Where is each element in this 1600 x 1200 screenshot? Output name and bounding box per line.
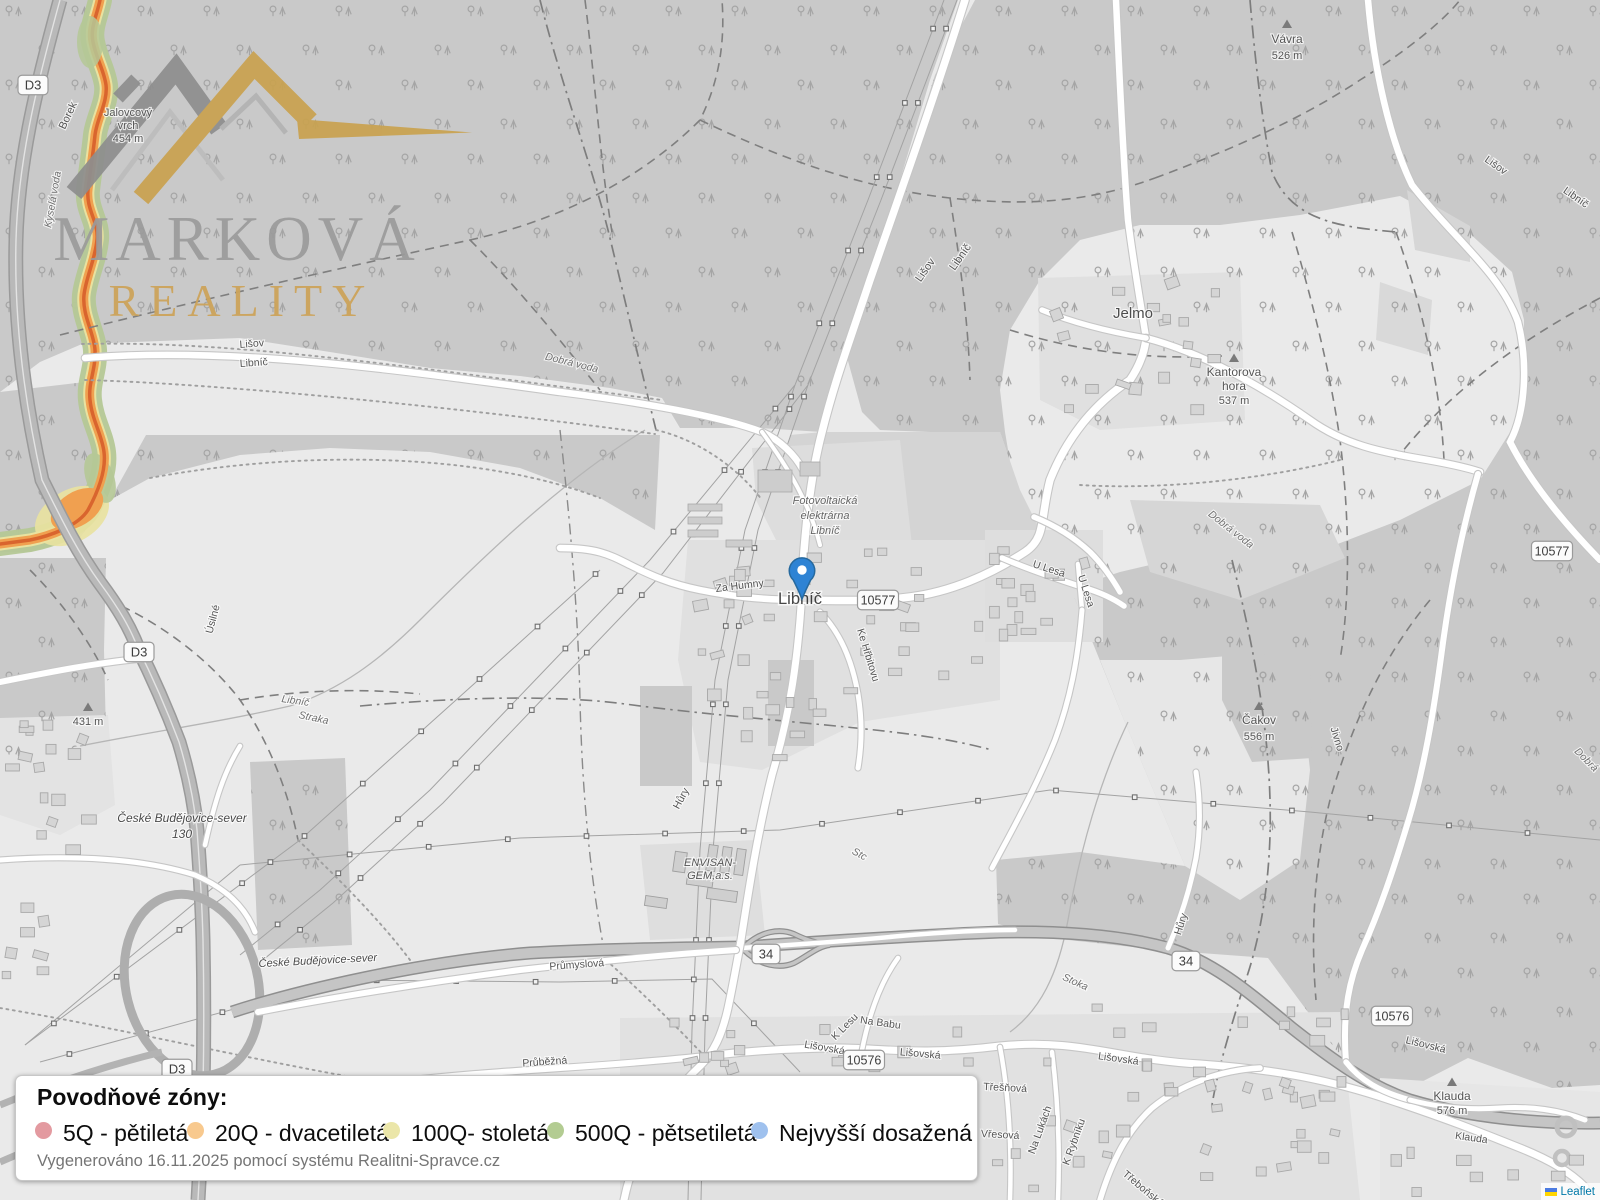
svg-text:D3: D3	[25, 77, 42, 92]
svg-text:34: 34	[759, 946, 773, 961]
svg-text:Fotovoltaická: Fotovoltaická	[793, 495, 858, 507]
svg-text:REALITY: REALITY	[109, 275, 376, 326]
svg-text:Jalovcový: Jalovcový	[104, 107, 153, 119]
svg-text:10577: 10577	[1535, 544, 1570, 558]
svg-text:Jelmo: Jelmo	[1113, 305, 1153, 322]
svg-text:454 m: 454 m	[113, 133, 144, 145]
svg-text:556 m: 556 m	[1244, 731, 1275, 743]
svg-text:Kantorova: Kantorova	[1207, 365, 1262, 379]
svg-text:Vávra: Vávra	[1271, 32, 1303, 46]
svg-text:576 m: 576 m	[1437, 1105, 1468, 1117]
svg-text:Libníč: Libníč	[810, 525, 840, 537]
svg-text:Libníč: Libníč	[239, 356, 268, 370]
svg-text:ENVISAN-: ENVISAN-	[684, 857, 736, 869]
svg-text:Čakov: Čakov	[1242, 712, 1276, 727]
svg-text:537 m: 537 m	[1219, 395, 1250, 407]
svg-text:Vřesová: Vřesová	[981, 1128, 1020, 1142]
svg-text:hora: hora	[1222, 379, 1246, 393]
svg-text:České Budějovice-sever: České Budějovice-sever	[117, 810, 247, 825]
svg-text:431 m: 431 m	[73, 716, 104, 728]
svg-text:elektrárna: elektrárna	[801, 510, 850, 522]
svg-text:MARKOVÁ: MARKOVÁ	[53, 204, 421, 274]
svg-text:Klauda: Klauda	[1433, 1089, 1471, 1103]
svg-text:34: 34	[1179, 953, 1193, 968]
svg-text:Lišov: Lišov	[239, 337, 265, 351]
svg-text:130: 130	[172, 827, 192, 841]
svg-text:vrch: vrch	[118, 120, 139, 132]
svg-text:D3: D3	[131, 644, 148, 659]
svg-text:526 m: 526 m	[1272, 50, 1303, 62]
svg-text:GEM,a.s.: GEM,a.s.	[687, 870, 733, 882]
svg-text:10576: 10576	[847, 1053, 882, 1067]
svg-text:10576: 10576	[1375, 1009, 1410, 1023]
svg-text:10577: 10577	[861, 593, 896, 607]
svg-text:Třešňová: Třešňová	[983, 1081, 1027, 1095]
